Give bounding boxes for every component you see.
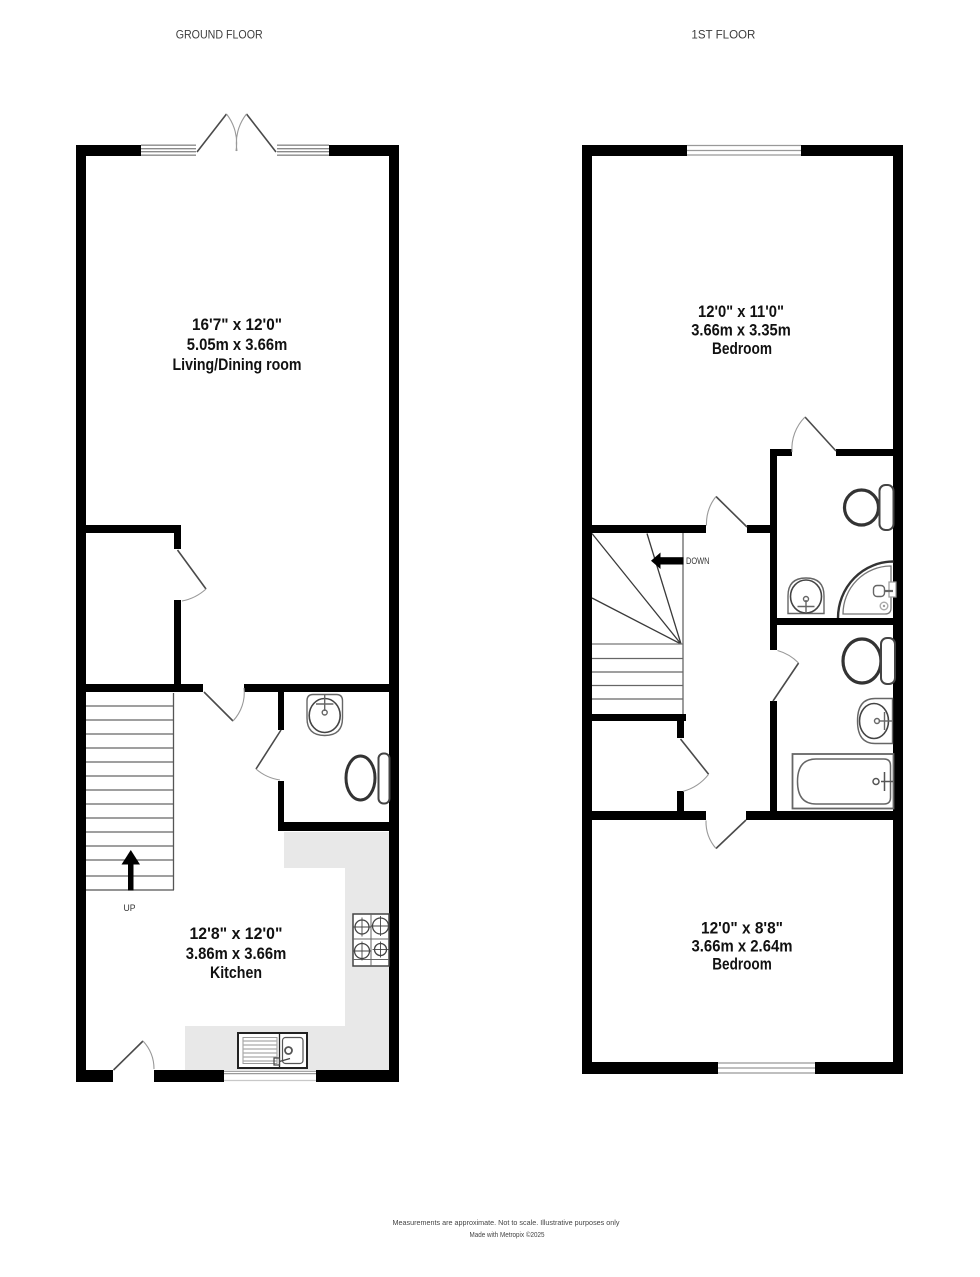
svg-text:12'8" x 12'0": 12'8" x 12'0"	[190, 924, 283, 943]
svg-text:UP: UP	[124, 903, 136, 913]
svg-text:Made with Metropix ©2025: Made with Metropix ©2025	[470, 1230, 545, 1239]
svg-text:16'7" x 12'0": 16'7" x 12'0"	[192, 315, 282, 334]
svg-text:3.86m x 3.66m: 3.86m x 3.66m	[186, 944, 287, 963]
svg-text:Kitchen: Kitchen	[210, 963, 262, 982]
svg-text:12'0" x 8'8": 12'0" x 8'8"	[701, 919, 783, 938]
svg-text:5.05m x 3.66m: 5.05m x 3.66m	[187, 335, 288, 354]
svg-text:Bedroom: Bedroom	[712, 955, 772, 974]
svg-text:3.66m x 3.35m: 3.66m x 3.35m	[691, 321, 791, 340]
svg-text:Living/Dining room: Living/Dining room	[173, 355, 302, 374]
svg-text:3.66m x 2.64m: 3.66m x 2.64m	[692, 937, 793, 956]
svg-text:GROUND FLOOR: GROUND FLOOR	[176, 30, 263, 42]
svg-text:Bedroom: Bedroom	[712, 339, 772, 358]
svg-text:1ST FLOOR: 1ST FLOOR	[691, 30, 755, 42]
svg-text:12'0" x 11'0": 12'0" x 11'0"	[698, 302, 784, 321]
svg-text:DOWN: DOWN	[686, 556, 710, 566]
svg-text:Measurements are approximate.: Measurements are approximate. Not to sca…	[393, 1218, 620, 1227]
